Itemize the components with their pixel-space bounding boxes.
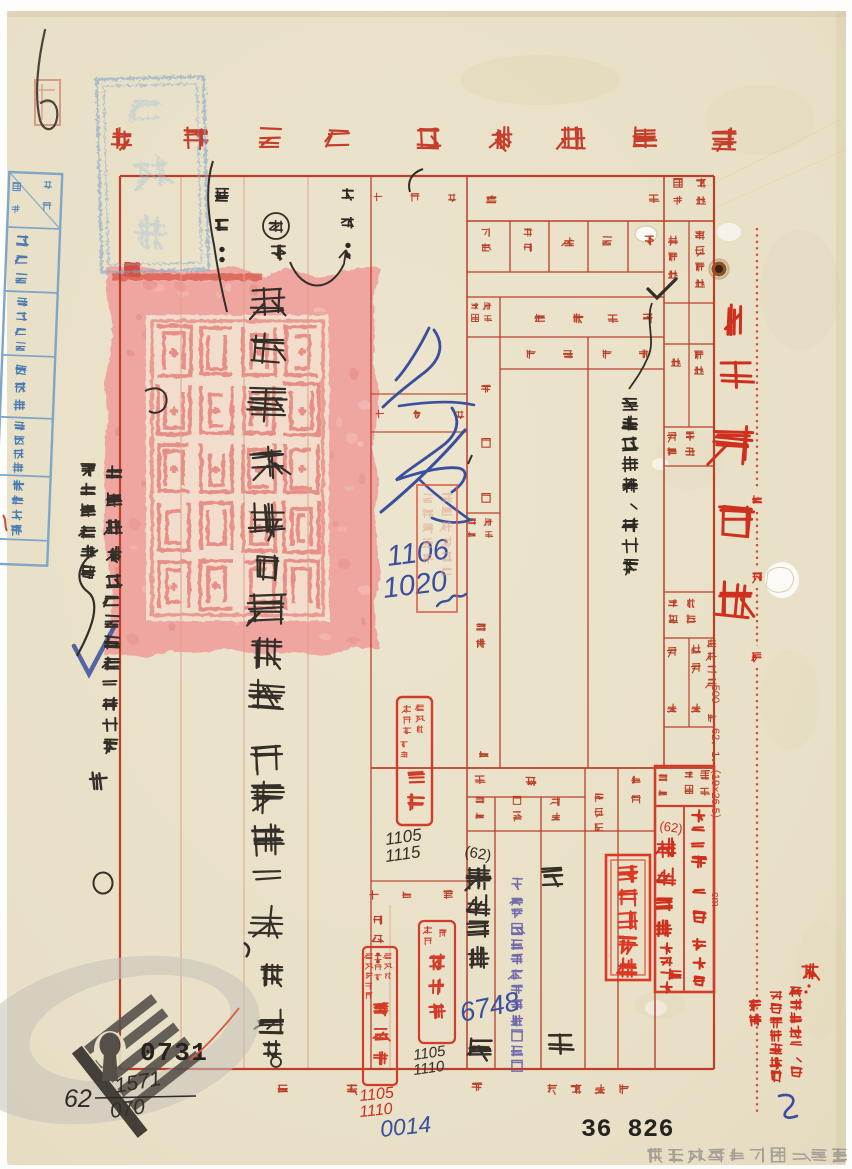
svg-text:500: 500 [709, 685, 721, 703]
svg-text:62: 62 [64, 1085, 92, 1113]
svg-text:070: 070 [108, 1095, 146, 1123]
svg-text:62．1．（19×26.5）: 62．1．（19×26.5） [709, 728, 722, 825]
svg-text:36 826: 36 826 [581, 1115, 674, 1144]
svg-text:0014: 0014 [379, 1111, 433, 1142]
svg-text:(62): (62) [659, 818, 684, 836]
